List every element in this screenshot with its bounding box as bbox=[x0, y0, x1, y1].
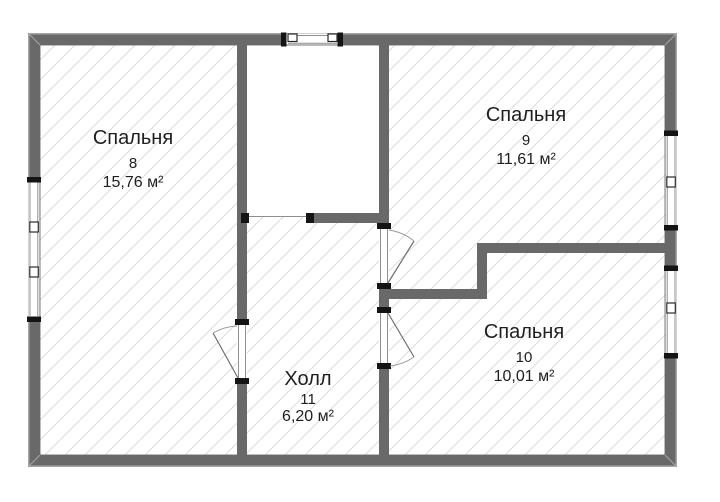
room-number: 9 bbox=[486, 133, 566, 148]
window-mullion bbox=[667, 177, 676, 187]
room-number: 11 bbox=[282, 392, 334, 407]
window-icon bbox=[281, 33, 343, 47]
room-area: 6,20 м² bbox=[282, 409, 334, 425]
window-mullion bbox=[328, 34, 337, 42]
room-area: 10,01 м² bbox=[484, 369, 564, 385]
room-label-bedroom-9: Спальня 9 11,61 м² bbox=[486, 104, 566, 168]
wall-top bbox=[28, 33, 677, 45]
door-jamb bbox=[377, 363, 391, 369]
window-cap bbox=[664, 225, 678, 231]
opening-cap-left bbox=[241, 213, 249, 223]
window-icon bbox=[27, 177, 41, 322]
door-jamb bbox=[377, 283, 391, 289]
window-icon bbox=[664, 266, 678, 359]
door-jamb bbox=[235, 319, 249, 325]
floor-plan-drawing bbox=[0, 0, 720, 502]
wall-stair-room-bottom bbox=[309, 213, 389, 223]
wall-bottom bbox=[28, 455, 677, 467]
window-mullion bbox=[30, 267, 39, 277]
wall-right bbox=[665, 33, 677, 467]
window-cap bbox=[664, 131, 678, 137]
room-name: Спальня bbox=[484, 321, 564, 344]
window-icon bbox=[664, 131, 678, 231]
wall-hall-divider-upper bbox=[379, 45, 389, 224]
room-name: Холл bbox=[282, 368, 334, 391]
wall-bedroom8-divider-lower bbox=[237, 383, 247, 455]
room-area: 11,61 м² bbox=[486, 152, 566, 168]
wall-bedroom9-10-step-left bbox=[389, 289, 487, 299]
floor-plan: Спальня 8 15,76 м² Спальня 9 11,61 м² Сп… bbox=[0, 0, 720, 502]
room-area: 15,76 м² bbox=[93, 175, 173, 191]
door-jamb bbox=[377, 307, 391, 313]
wall-hall-divider-lower bbox=[379, 368, 389, 455]
room-name: Спальня bbox=[93, 127, 173, 150]
room-name: Спальня bbox=[486, 104, 566, 127]
room-label-hall: Холл 11 6,20 м² bbox=[282, 368, 334, 425]
window-mullion bbox=[30, 222, 39, 232]
wall-bedroom8-divider-upper bbox=[237, 45, 247, 320]
wall-bedroom9-10-divider bbox=[477, 243, 665, 253]
window-cap bbox=[27, 317, 41, 323]
door-jamb bbox=[377, 223, 391, 229]
door-jamb bbox=[235, 378, 249, 384]
wall-hall-divider-middle bbox=[379, 288, 389, 308]
window-cap bbox=[281, 33, 287, 47]
window-mullion bbox=[288, 34, 297, 42]
opening-cap-right bbox=[306, 213, 314, 223]
room-label-bedroom-10: Спальня 10 10,01 м² bbox=[484, 321, 564, 385]
window-cap bbox=[664, 266, 678, 272]
room-number: 8 bbox=[93, 156, 173, 171]
window-mullion bbox=[667, 303, 676, 313]
room-label-bedroom-8: Спальня 8 15,76 м² bbox=[93, 127, 173, 191]
window-cap bbox=[338, 33, 344, 47]
window-cap bbox=[27, 177, 41, 183]
room-unlabeled-area bbox=[247, 45, 379, 216]
room-number: 10 bbox=[484, 350, 564, 365]
window-cap bbox=[664, 353, 678, 359]
